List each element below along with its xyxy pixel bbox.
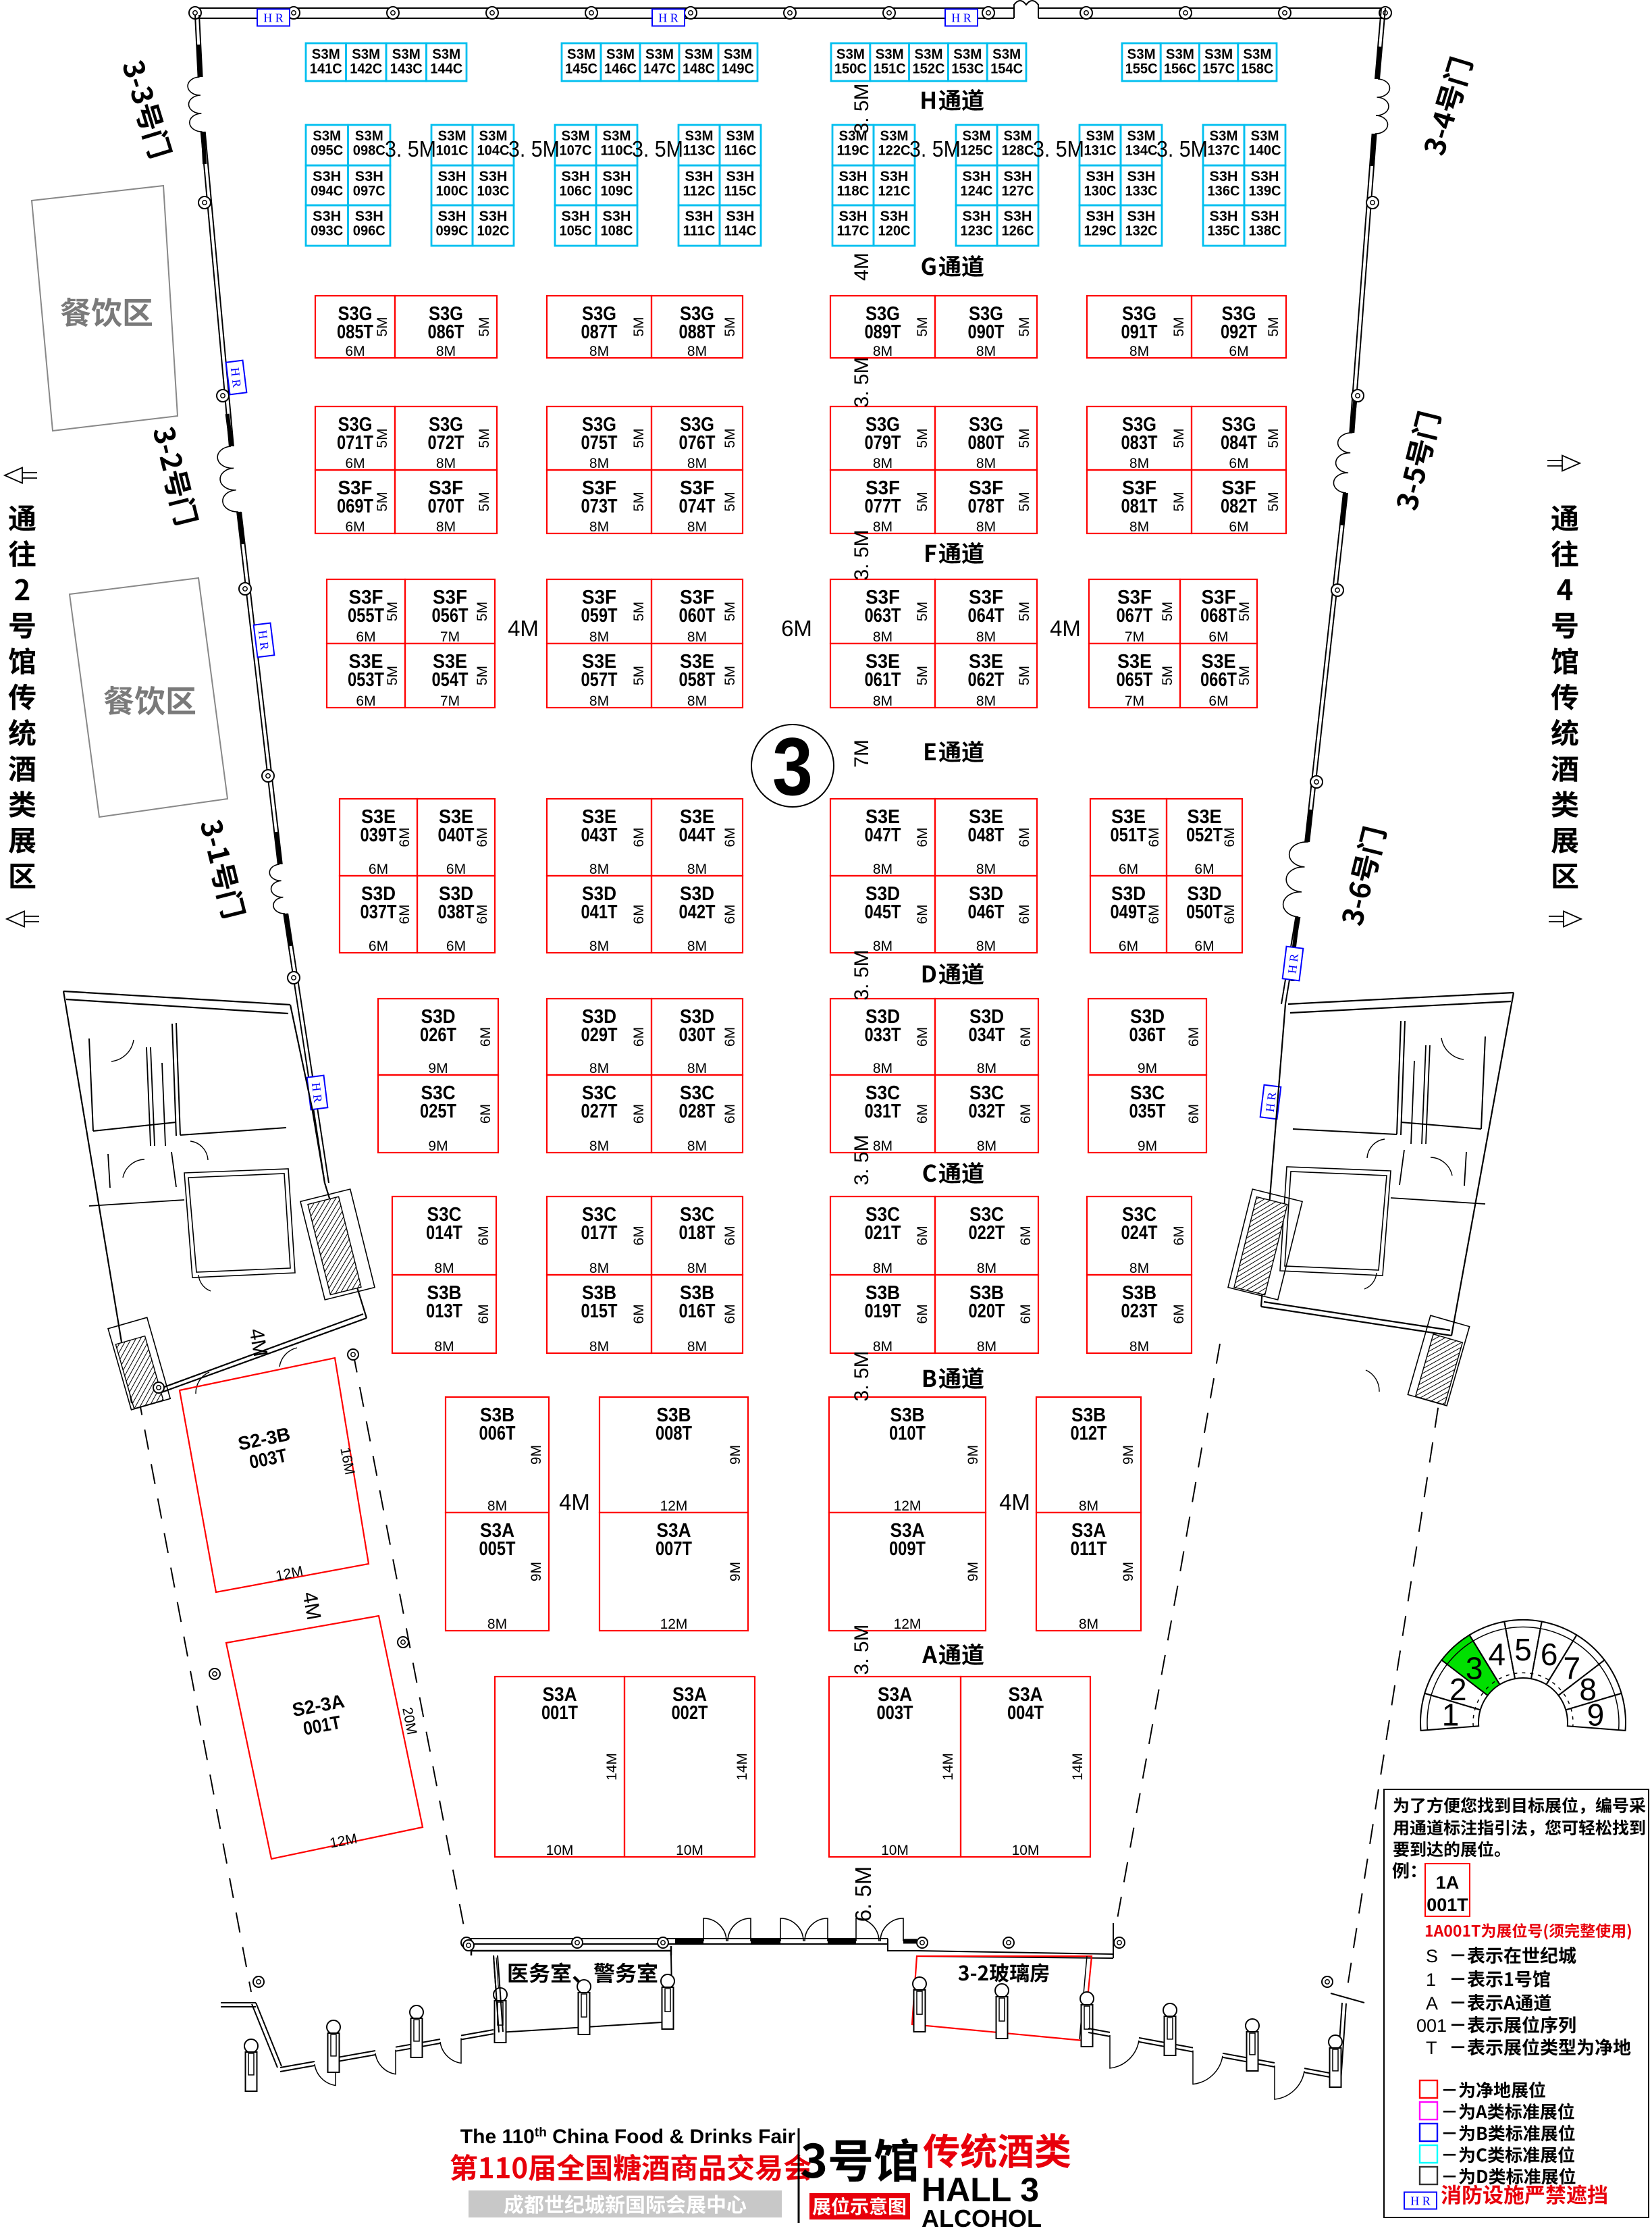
svg-text:S3H124C: S3H124C xyxy=(961,169,993,199)
svg-text:S3D036T: S3D036T xyxy=(1129,1006,1166,1046)
svg-text:S3A007T: S3A007T xyxy=(656,1520,692,1560)
svg-text:5M: 5M xyxy=(1237,602,1252,621)
svg-text:8M: 8M xyxy=(687,693,707,709)
svg-text:6M: 6M xyxy=(478,1027,494,1047)
svg-text:S3F077T: S3F077T xyxy=(865,477,901,517)
svg-text:S3D026T: S3D026T xyxy=(420,1006,456,1046)
svg-text:6M: 6M xyxy=(475,827,490,847)
svg-text:6M: 6M xyxy=(475,904,490,924)
svg-text:5M: 5M xyxy=(1171,428,1187,448)
svg-text:5M: 5M xyxy=(475,666,490,685)
svg-text:6: 6 xyxy=(1541,1637,1558,1672)
svg-text:7M: 7M xyxy=(851,739,873,768)
svg-text:S3D049T: S3D049T xyxy=(1111,883,1147,923)
svg-text:S3G089T: S3G089T xyxy=(865,303,901,343)
svg-text:H R: H R xyxy=(256,629,271,651)
svg-text:S3F074T: S3F074T xyxy=(679,477,716,517)
svg-text:H R: H R xyxy=(263,11,284,25)
svg-text:14M: 14M xyxy=(940,1753,956,1781)
svg-text:S3H120C: S3H120C xyxy=(878,209,911,239)
svg-text:S3M107C: S3M107C xyxy=(560,128,592,159)
svg-text:S3D037T: S3D037T xyxy=(361,883,397,923)
svg-text:6M: 6M xyxy=(1186,1027,1202,1047)
svg-text:6M: 6M xyxy=(1229,456,1248,471)
svg-text:S3M098C: S3M098C xyxy=(353,128,385,159)
svg-text:6M: 6M xyxy=(915,1104,930,1124)
svg-text:S3E047T: S3E047T xyxy=(865,806,901,846)
svg-text:3. 5M: 3. 5M xyxy=(1156,136,1208,161)
svg-text:6M: 6M xyxy=(1222,904,1237,924)
svg-text:S3C027T: S3C027T xyxy=(581,1082,618,1122)
svg-text:5M: 5M xyxy=(722,428,738,448)
svg-text:S3B015T: S3B015T xyxy=(581,1282,618,1322)
svg-text:S3C024T: S3C024T xyxy=(1121,1204,1158,1244)
svg-text:S3B012T: S3B012T xyxy=(1071,1404,1107,1444)
svg-text:H R: H R xyxy=(1285,953,1301,974)
svg-text:S3F073T: S3F073T xyxy=(581,477,618,517)
svg-text:6M: 6M xyxy=(1194,939,1214,954)
svg-text:8M: 8M xyxy=(436,344,456,359)
svg-text:S3A004T: S3A004T xyxy=(1007,1684,1044,1724)
svg-text:8M: 8M xyxy=(687,519,707,535)
svg-text:7M: 7M xyxy=(1125,629,1144,645)
svg-text:6M: 6M xyxy=(722,1027,738,1047)
svg-text:7M: 7M xyxy=(440,629,460,645)
svg-text:S3F068T: S3F068T xyxy=(1200,587,1237,627)
svg-text:6M: 6M xyxy=(915,1226,930,1245)
svg-text:8M: 8M xyxy=(873,519,892,535)
svg-text:S3C028T: S3C028T xyxy=(679,1082,716,1122)
svg-text:H R: H R xyxy=(658,11,678,25)
svg-text:7: 7 xyxy=(1564,1651,1581,1686)
svg-text:5M: 5M xyxy=(1017,317,1032,336)
svg-text:6M: 6M xyxy=(356,693,375,709)
svg-text:S3B006T: S3B006T xyxy=(479,1404,516,1444)
svg-text:S3D033T: S3D033T xyxy=(865,1006,901,1046)
svg-text:5M: 5M xyxy=(915,428,930,448)
svg-text:S3G088T: S3G088T xyxy=(679,303,716,343)
svg-text:S3H111C: S3H111C xyxy=(683,209,716,239)
svg-text:6M: 6M xyxy=(1186,1104,1202,1124)
svg-text:S3M147C: S3M147C xyxy=(643,47,676,77)
svg-text:S3M146C: S3M146C xyxy=(604,47,637,77)
svg-text:8M: 8M xyxy=(873,1061,892,1076)
svg-text:6M: 6M xyxy=(1146,904,1162,924)
svg-text:S3G075T: S3G075T xyxy=(581,414,618,454)
svg-text:5M: 5M xyxy=(631,666,647,685)
svg-text:S3E066T: S3E066T xyxy=(1200,651,1237,691)
svg-text:8M: 8M xyxy=(1129,1261,1149,1276)
svg-text:10M: 10M xyxy=(546,1843,574,1858)
svg-text:12M: 12M xyxy=(660,1498,688,1514)
svg-text:5M: 5M xyxy=(385,666,400,685)
svg-text:6M: 6M xyxy=(476,1226,491,1245)
svg-text:4M: 4M xyxy=(508,616,539,641)
svg-text:5M: 5M xyxy=(915,602,930,621)
svg-text:6M: 6M xyxy=(722,1226,738,1245)
svg-text:5M: 5M xyxy=(631,492,647,511)
svg-text:S3G079T: S3G079T xyxy=(865,414,901,454)
svg-text:S3G071T: S3G071T xyxy=(337,414,373,454)
svg-text:S3G084T: S3G084T xyxy=(1221,414,1257,454)
svg-text:S3H132C: S3H132C xyxy=(1125,209,1158,239)
svg-text:5: 5 xyxy=(1514,1632,1532,1667)
svg-text:S3M140C: S3M140C xyxy=(1249,128,1281,159)
svg-text:8M: 8M xyxy=(589,693,609,709)
svg-text:8M: 8M xyxy=(976,939,996,954)
svg-text:S3M157C: S3M157C xyxy=(1202,47,1235,77)
svg-text:S3G076T: S3G076T xyxy=(679,414,716,454)
svg-text:S3H117C: S3H117C xyxy=(837,209,870,239)
svg-text:5M: 5M xyxy=(631,317,647,336)
svg-text:9M: 9M xyxy=(529,1445,544,1465)
svg-text:3. 5M: 3. 5M xyxy=(851,83,873,134)
svg-text:8M: 8M xyxy=(687,1261,707,1276)
svg-text:S3C017T: S3C017T xyxy=(581,1204,618,1244)
svg-text:T: T xyxy=(1426,2038,1437,2058)
svg-text:8M: 8M xyxy=(976,629,996,645)
svg-text:8M: 8M xyxy=(976,862,996,877)
svg-text:8M: 8M xyxy=(589,1339,609,1355)
svg-text:S3B010T: S3B010T xyxy=(889,1404,926,1444)
svg-text:S3M104C: S3M104C xyxy=(477,128,510,159)
svg-text:8M: 8M xyxy=(873,1138,892,1154)
svg-text:6M: 6M xyxy=(345,344,365,359)
svg-text:7M: 7M xyxy=(1125,693,1144,709)
svg-text:S3B023T: S3B023T xyxy=(1121,1282,1158,1322)
svg-text:S3M150C: S3M150C xyxy=(834,47,867,77)
svg-text:5M: 5M xyxy=(722,317,738,336)
svg-text:S3M145C: S3M145C xyxy=(565,47,597,77)
svg-text:S3M095C: S3M095C xyxy=(311,128,343,159)
svg-text:The 110th China Food & Drinks: The 110th China Food & Drinks Fair xyxy=(460,2126,796,2148)
svg-text:S3C018T: S3C018T xyxy=(679,1204,716,1244)
svg-text:9M: 9M xyxy=(965,1445,981,1465)
svg-text:S3H099C: S3H099C xyxy=(436,209,469,239)
svg-text:S3D034T: S3D034T xyxy=(969,1006,1005,1046)
svg-text:S3C025T: S3C025T xyxy=(420,1082,456,1122)
svg-text:S3G092T: S3G092T xyxy=(1221,303,1257,343)
svg-text:8M: 8M xyxy=(873,456,892,471)
svg-text:6M: 6M xyxy=(476,1304,491,1323)
svg-text:8M: 8M xyxy=(589,519,609,535)
svg-text:S3E065T: S3E065T xyxy=(1117,651,1153,691)
svg-text:5M: 5M xyxy=(1171,317,1187,336)
svg-text:S3H133C: S3H133C xyxy=(1125,169,1158,199)
svg-text:S3E052T: S3E052T xyxy=(1186,806,1223,846)
svg-text:6M: 6M xyxy=(1018,1304,1034,1323)
svg-text:9M: 9M xyxy=(1121,1562,1136,1581)
svg-text:6M: 6M xyxy=(1194,862,1214,877)
svg-text:8M: 8M xyxy=(1129,519,1149,535)
svg-text:5M: 5M xyxy=(915,317,930,336)
svg-text:6M: 6M xyxy=(1222,827,1237,847)
svg-text:8M: 8M xyxy=(976,456,996,471)
svg-text:8M: 8M xyxy=(589,1261,609,1276)
svg-text:3. 5M: 3. 5M xyxy=(508,136,560,161)
svg-text:10M: 10M xyxy=(1012,1843,1040,1858)
svg-text:8M: 8M xyxy=(873,1261,892,1276)
svg-text:S3E048T: S3E048T xyxy=(968,806,1005,846)
svg-text:9M: 9M xyxy=(728,1445,743,1465)
svg-text:6M: 6M xyxy=(1119,862,1138,877)
svg-text:S3H097C: S3H097C xyxy=(353,169,385,199)
svg-text:6M: 6M xyxy=(1018,1027,1034,1047)
svg-text:8M: 8M xyxy=(1129,1339,1149,1355)
svg-text:5M: 5M xyxy=(375,492,390,511)
svg-text:8M: 8M xyxy=(977,1061,996,1076)
svg-text:8M: 8M xyxy=(687,939,707,954)
svg-text:8M: 8M xyxy=(976,693,996,709)
svg-text:S3G080T: S3G080T xyxy=(968,414,1005,454)
svg-text:8M: 8M xyxy=(873,629,892,645)
svg-text:S3E054T: S3E054T xyxy=(432,651,469,691)
svg-text:8M: 8M xyxy=(487,1617,507,1632)
svg-text:10M: 10M xyxy=(881,1843,909,1858)
svg-text:14M: 14M xyxy=(1070,1753,1086,1781)
svg-text:S3G091T: S3G091T xyxy=(1121,303,1158,343)
svg-text:S3E051T: S3E051T xyxy=(1111,806,1147,846)
svg-text:8M: 8M xyxy=(589,344,609,359)
svg-text:S3H123C: S3H123C xyxy=(961,209,993,239)
svg-text:S3H135C: S3H135C xyxy=(1208,209,1240,239)
svg-text:A: A xyxy=(1426,1993,1438,2014)
svg-text:8M: 8M xyxy=(687,629,707,645)
svg-text:6M: 6M xyxy=(1171,1304,1187,1323)
svg-text:S3F067T: S3F067T xyxy=(1117,587,1153,627)
svg-text:S3M158C: S3M158C xyxy=(1241,47,1273,77)
svg-text:S3H138C: S3H138C xyxy=(1249,209,1281,239)
svg-text:S3M144C: S3M144C xyxy=(430,47,462,77)
svg-text:S3M152C: S3M152C xyxy=(913,47,945,77)
svg-text:6M: 6M xyxy=(631,1226,647,1245)
svg-text:8M: 8M xyxy=(687,1061,707,1076)
svg-text:3. 5M: 3. 5M xyxy=(385,136,436,161)
svg-text:S3F078T: S3F078T xyxy=(968,477,1005,517)
svg-text:S3H139C: S3H139C xyxy=(1249,169,1281,199)
svg-text:S3E057T: S3E057T xyxy=(581,651,618,691)
svg-text:S3M131C: S3M131C xyxy=(1084,128,1117,159)
svg-text:6M: 6M xyxy=(397,827,412,847)
svg-text:S3F082T: S3F082T xyxy=(1221,477,1257,517)
svg-text:8M: 8M xyxy=(434,1339,454,1355)
svg-text:8M: 8M xyxy=(873,344,892,359)
svg-text:9M: 9M xyxy=(965,1562,981,1581)
svg-text:S3F070T: S3F070T xyxy=(428,477,464,517)
svg-text:S3H103C: S3H103C xyxy=(477,169,510,199)
svg-text:3. 5M: 3. 5M xyxy=(851,357,873,407)
svg-text:8M: 8M xyxy=(436,519,456,535)
svg-text:4M: 4M xyxy=(851,253,873,281)
svg-text:5M: 5M xyxy=(1266,428,1281,448)
svg-text:S3H100C: S3H100C xyxy=(436,169,469,199)
svg-text:6M: 6M xyxy=(1018,1104,1034,1124)
svg-text:S3D045T: S3D045T xyxy=(865,883,901,923)
svg-text:S3M116C: S3M116C xyxy=(724,128,757,159)
svg-text:S3B019T: S3B019T xyxy=(865,1282,901,1322)
svg-text:S3H108C: S3H108C xyxy=(601,209,633,239)
svg-text:9M: 9M xyxy=(1138,1061,1157,1076)
svg-text:8M: 8M xyxy=(873,1339,892,1355)
svg-text:7M: 7M xyxy=(440,693,460,709)
svg-text:8M: 8M xyxy=(687,862,707,877)
svg-text:S3C035T: S3C035T xyxy=(1129,1082,1166,1122)
svg-text:5M: 5M xyxy=(1160,602,1175,621)
svg-text:6M: 6M xyxy=(345,456,365,471)
svg-text:S3F069T: S3F069T xyxy=(337,477,373,517)
svg-text:8M: 8M xyxy=(589,939,609,954)
svg-text:14M: 14M xyxy=(735,1753,750,1781)
svg-text:6M: 6M xyxy=(1017,827,1032,847)
svg-text:S3M125C: S3M125C xyxy=(961,128,993,159)
svg-text:5M: 5M xyxy=(1237,666,1252,685)
svg-text:S3H102C: S3H102C xyxy=(477,209,510,239)
svg-text:5M: 5M xyxy=(722,492,738,511)
svg-text:5M: 5M xyxy=(1266,492,1281,511)
svg-text:S3D038T: S3D038T xyxy=(438,883,475,923)
svg-text:3. 5M: 3. 5M xyxy=(851,529,873,580)
svg-text:S3F064T: S3F064T xyxy=(968,587,1005,627)
svg-text:S3H114C: S3H114C xyxy=(724,209,757,239)
svg-text:8M: 8M xyxy=(1079,1498,1098,1514)
svg-text:S3E039T: S3E039T xyxy=(361,806,397,846)
svg-text:S3F056T: S3F056T xyxy=(432,587,469,627)
svg-text:9M: 9M xyxy=(428,1138,448,1154)
svg-text:6M: 6M xyxy=(915,827,930,847)
svg-text:6. 5M: 6. 5M xyxy=(851,1866,876,1922)
svg-text:5M: 5M xyxy=(385,602,400,621)
svg-text:6M: 6M xyxy=(915,1304,930,1323)
svg-text:S3F055T: S3F055T xyxy=(348,587,384,627)
svg-text:12M: 12M xyxy=(894,1617,922,1632)
svg-text:S3H115C: S3H115C xyxy=(724,169,757,199)
svg-text:3: 3 xyxy=(772,720,813,812)
svg-text:S3H109C: S3H109C xyxy=(601,169,633,199)
svg-text:3. 5M: 3. 5M xyxy=(851,1350,873,1401)
svg-text:9M: 9M xyxy=(529,1562,544,1581)
svg-text:S3D030T: S3D030T xyxy=(679,1006,716,1046)
svg-text:S3M110C: S3M110C xyxy=(601,128,633,159)
svg-text:S: S xyxy=(1426,1946,1438,1966)
svg-text:5M: 5M xyxy=(1017,492,1032,511)
svg-text:6M: 6M xyxy=(1119,939,1138,954)
svg-text:S3E044T: S3E044T xyxy=(679,806,716,846)
svg-text:S3G085T: S3G085T xyxy=(337,303,373,343)
svg-text:S3B013T: S3B013T xyxy=(426,1282,462,1322)
svg-text:4M: 4M xyxy=(559,1490,590,1515)
svg-text:S3D042T: S3D042T xyxy=(679,883,716,923)
svg-text:S3M154C: S3M154C xyxy=(990,47,1023,77)
svg-text:S3M151C: S3M151C xyxy=(874,47,906,77)
svg-text:8M: 8M xyxy=(589,629,609,645)
svg-text:6M: 6M xyxy=(1018,1226,1034,1245)
svg-text:S3C014T: S3C014T xyxy=(426,1204,462,1244)
svg-text:S3A009T: S3A009T xyxy=(889,1520,926,1560)
svg-text:5M: 5M xyxy=(722,666,738,685)
svg-text:8M: 8M xyxy=(434,1261,454,1276)
svg-text:6M: 6M xyxy=(446,939,466,954)
svg-text:S3C032T: S3C032T xyxy=(969,1082,1005,1122)
svg-text:6M: 6M xyxy=(446,862,466,877)
svg-text:S3B016T: S3B016T xyxy=(679,1282,716,1322)
svg-text:4: 4 xyxy=(1489,1637,1506,1672)
svg-text:6M: 6M xyxy=(356,629,375,645)
svg-text:S3E061T: S3E061T xyxy=(865,651,901,691)
svg-text:9: 9 xyxy=(1587,1698,1605,1733)
svg-text:8M: 8M xyxy=(589,862,609,877)
svg-text:5M: 5M xyxy=(631,428,647,448)
svg-text:H R: H R xyxy=(309,1082,325,1103)
svg-text:5M: 5M xyxy=(1017,428,1032,448)
svg-text:S3G087T: S3G087T xyxy=(581,303,618,343)
svg-text:H R: H R xyxy=(951,11,971,25)
svg-text:S3M137C: S3M137C xyxy=(1208,128,1240,159)
svg-text:S3M101C: S3M101C xyxy=(436,128,469,159)
svg-text:S3A002T: S3A002T xyxy=(672,1684,708,1724)
svg-text:6M: 6M xyxy=(478,1104,494,1124)
svg-text:S3D029T: S3D029T xyxy=(581,1006,618,1046)
svg-text:5M: 5M xyxy=(915,666,930,685)
svg-text:S3M155C: S3M155C xyxy=(1125,47,1158,77)
svg-text:1A: 1A xyxy=(1436,1872,1460,1893)
svg-text:8M: 8M xyxy=(1129,344,1149,359)
svg-text:S3H112C: S3H112C xyxy=(683,169,716,199)
svg-text:S3H118C: S3H118C xyxy=(837,169,870,199)
svg-text:9M: 9M xyxy=(1121,1445,1136,1465)
svg-text:5M: 5M xyxy=(477,492,492,511)
svg-text:10M: 10M xyxy=(676,1843,703,1858)
svg-text:S3D041T: S3D041T xyxy=(581,883,618,923)
svg-text:6M: 6M xyxy=(1208,629,1228,645)
svg-text:6M: 6M xyxy=(915,1027,930,1047)
svg-text:3. 5M: 3. 5M xyxy=(909,136,961,161)
svg-text:S3M153C: S3M153C xyxy=(951,47,984,77)
svg-text:9M: 9M xyxy=(1138,1138,1157,1154)
svg-text:8M: 8M xyxy=(977,1339,996,1355)
svg-text:S3A005T: S3A005T xyxy=(479,1520,516,1560)
svg-text:S3H127C: S3H127C xyxy=(1002,169,1034,199)
svg-text:8M: 8M xyxy=(487,1498,507,1514)
svg-text:5M: 5M xyxy=(475,602,490,621)
svg-text:S3E062T: S3E062T xyxy=(968,651,1005,691)
svg-text:5M: 5M xyxy=(477,428,492,448)
svg-text:S3G090T: S3G090T xyxy=(968,303,1005,343)
svg-text:3: 3 xyxy=(1466,1651,1483,1686)
svg-text:S3M143C: S3M143C xyxy=(390,47,423,77)
svg-text:S3C021T: S3C021T xyxy=(865,1204,901,1244)
svg-text:S3H093C: S3H093C xyxy=(311,209,343,239)
svg-text:6M: 6M xyxy=(369,862,388,877)
svg-text:5M: 5M xyxy=(1017,602,1032,621)
svg-text:S3M128C: S3M128C xyxy=(1002,128,1034,159)
svg-text:HALL 3: HALL 3 xyxy=(922,2171,1039,2209)
svg-text:S3E058T: S3E058T xyxy=(679,651,716,691)
svg-text:S3A003T: S3A003T xyxy=(877,1684,913,1724)
svg-text:9M: 9M xyxy=(728,1562,743,1581)
svg-text:5M: 5M xyxy=(1160,666,1175,685)
svg-text:H R: H R xyxy=(1410,2195,1431,2208)
svg-text:6M: 6M xyxy=(345,519,365,535)
svg-text:8M: 8M xyxy=(976,519,996,535)
svg-text:6M: 6M xyxy=(1229,519,1248,535)
svg-text:6M: 6M xyxy=(1208,693,1228,709)
svg-text:6M: 6M xyxy=(722,1304,738,1323)
svg-text:S3H126C: S3H126C xyxy=(1002,209,1034,239)
svg-text:S3F081T: S3F081T xyxy=(1121,477,1158,517)
svg-text:001: 001 xyxy=(1416,2016,1447,2036)
svg-text:5M: 5M xyxy=(1266,317,1281,336)
svg-text:001T: 001T xyxy=(1427,1895,1468,1915)
